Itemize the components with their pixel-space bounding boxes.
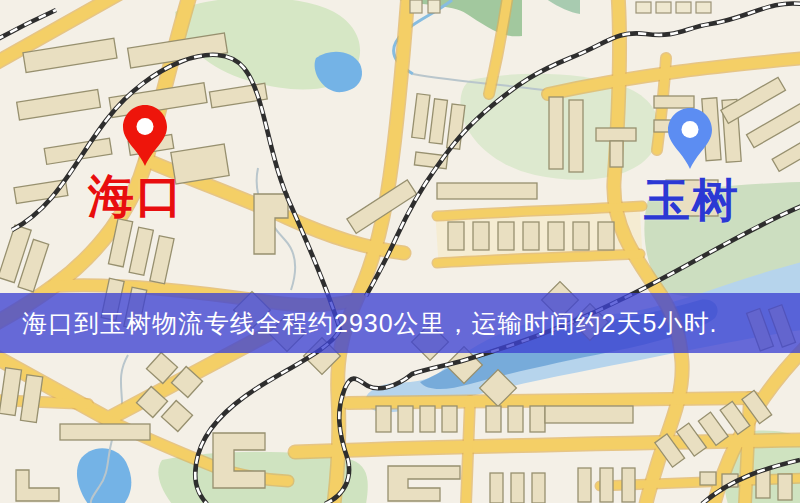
origin-label: 海口	[88, 173, 184, 219]
pin-body	[123, 105, 167, 166]
pin-hole	[682, 121, 699, 138]
pin-hole	[137, 118, 154, 135]
location-pin-icon	[667, 107, 713, 173]
map-canvas[interactable]	[0, 0, 800, 503]
destination-label: 玉树	[644, 177, 740, 223]
route-info-banner: 海口到玉树物流专线全程约2930公里，运输时间约2天5小时.	[0, 293, 800, 353]
destination-marker-pin[interactable]	[667, 107, 713, 173]
origin-marker-pin[interactable]	[122, 104, 168, 170]
map-background	[0, 0, 800, 503]
location-pin-icon	[122, 104, 168, 170]
logistics-route-map: 海口 玉树 海口到玉树物流专线全程约2930公里，运输时间约2天5小时.	[0, 0, 800, 503]
route-info-text: 海口到玉树物流专线全程约2930公里，运输时间约2天5小时.	[0, 307, 717, 340]
pin-body	[668, 108, 712, 169]
